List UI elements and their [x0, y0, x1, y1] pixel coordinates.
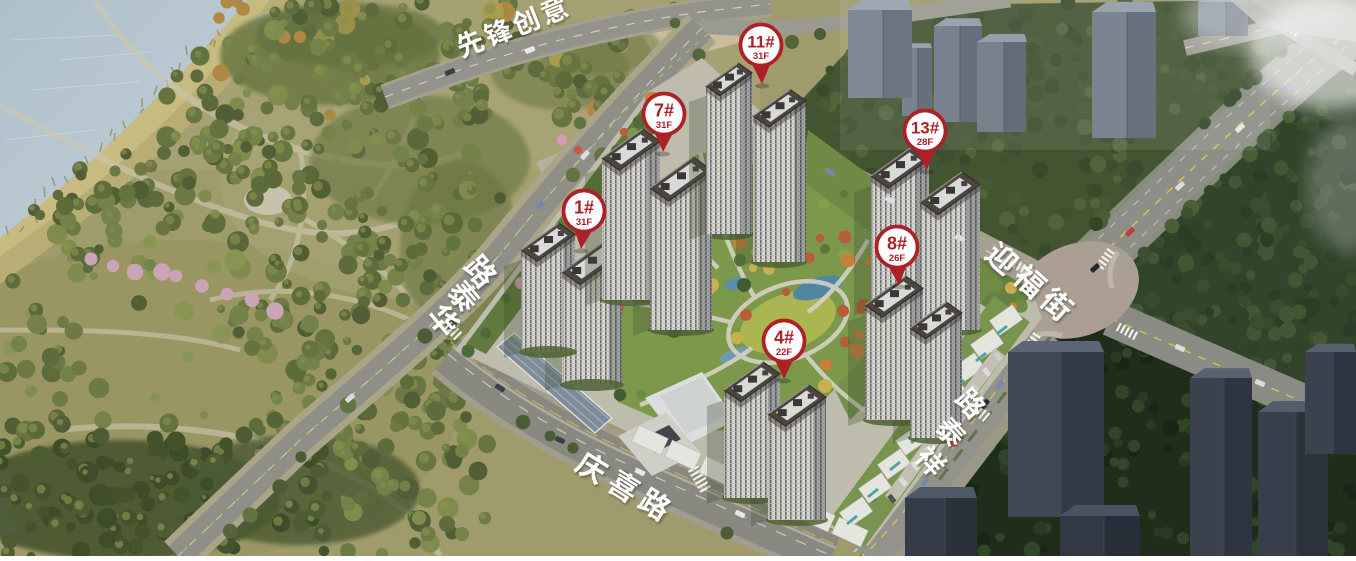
svg-text:7#: 7# — [654, 101, 674, 121]
svg-text:1#: 1# — [574, 198, 594, 218]
svg-text:31F: 31F — [753, 51, 770, 62]
svg-text:8#: 8# — [887, 234, 907, 254]
svg-text:4#: 4# — [774, 328, 794, 348]
svg-text:22F: 22F — [776, 347, 793, 358]
svg-text:11#: 11# — [747, 33, 775, 52]
svg-text:13#: 13# — [911, 119, 940, 138]
svg-text:31F: 31F — [576, 217, 593, 228]
svg-text:28F: 28F — [917, 137, 934, 148]
svg-text:31F: 31F — [656, 120, 673, 131]
svg-text:26F: 26F — [889, 253, 906, 264]
